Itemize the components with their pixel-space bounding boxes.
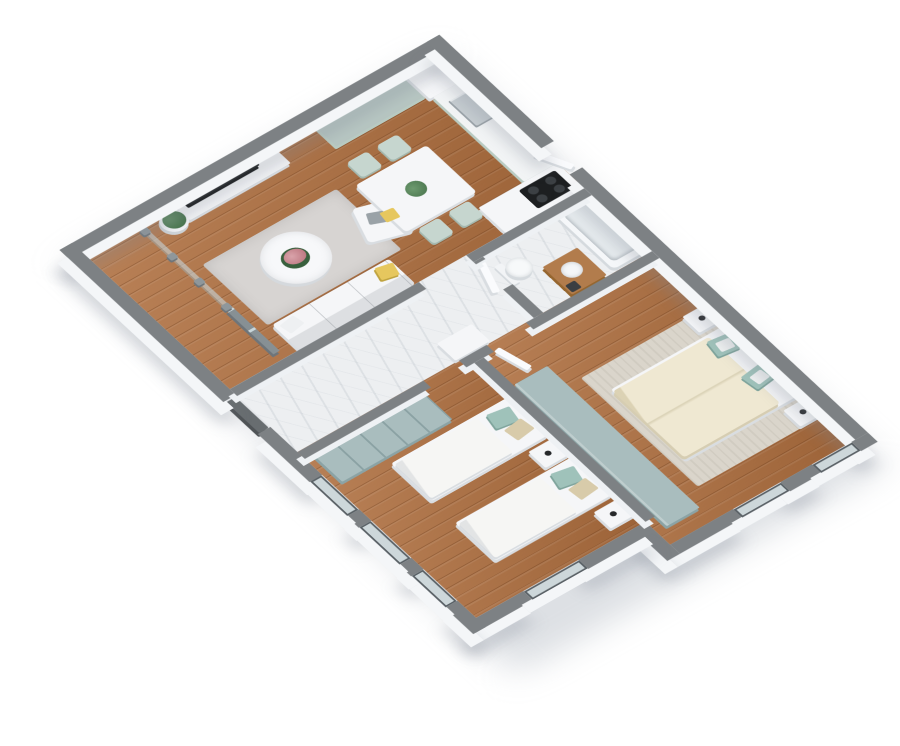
apartment-plan: [82, 51, 880, 664]
floorplan-scene: [0, 0, 900, 746]
